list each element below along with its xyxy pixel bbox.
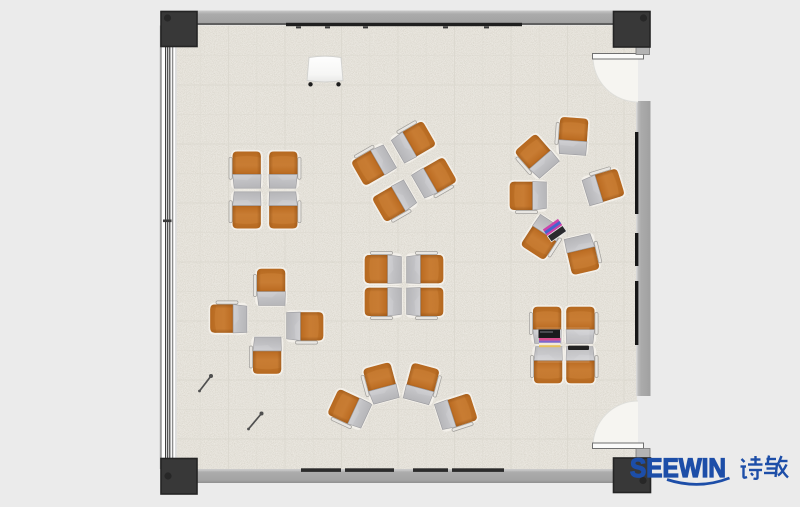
svg-text:SEEWIN: SEEWIN [630,453,726,483]
